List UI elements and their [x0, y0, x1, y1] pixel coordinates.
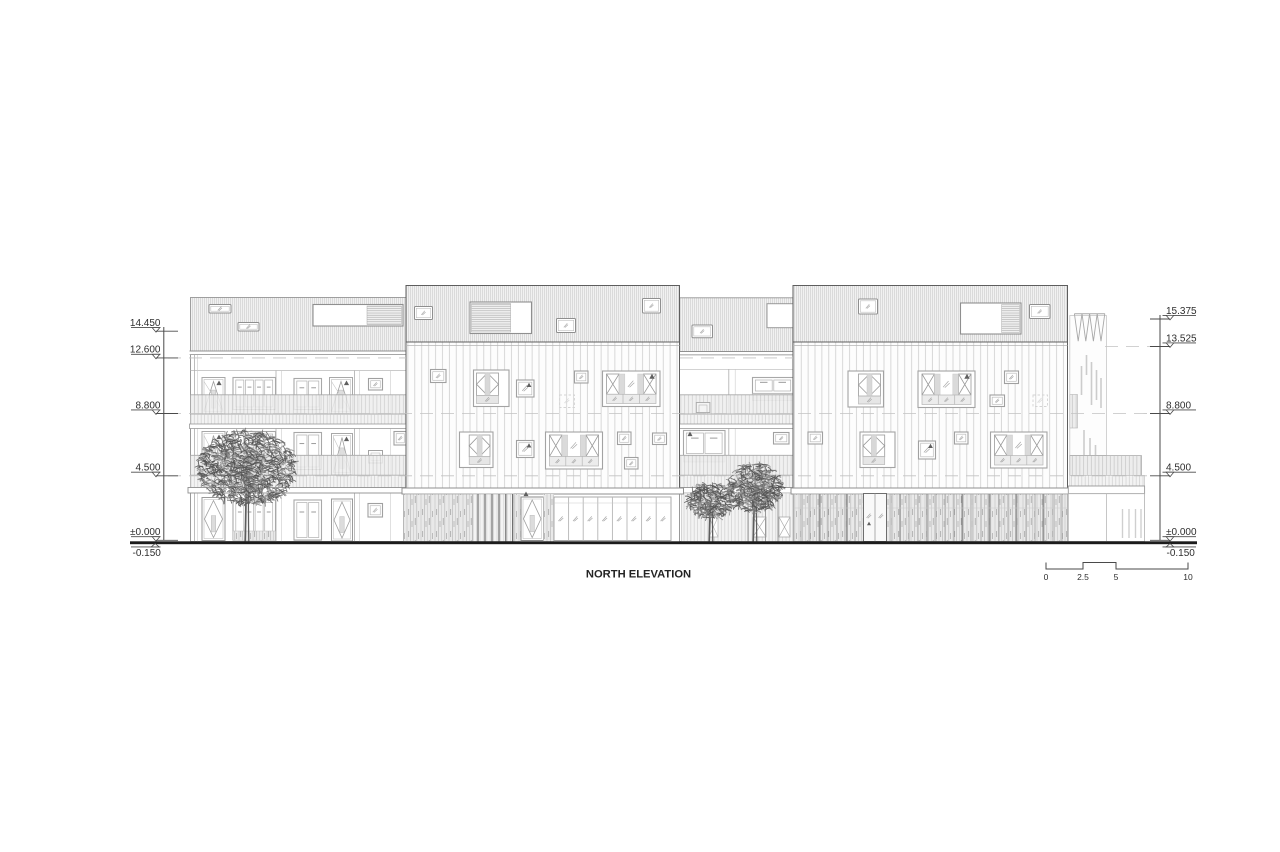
svg-text:NORTH ELEVATION: NORTH ELEVATION — [586, 569, 691, 581]
svg-text:5: 5 — [1114, 572, 1119, 582]
svg-text:13.525: 13.525 — [1166, 333, 1197, 344]
svg-text:-0.150: -0.150 — [1167, 548, 1196, 559]
svg-text:10: 10 — [1183, 572, 1193, 582]
svg-text:±0.000: ±0.000 — [130, 527, 161, 538]
svg-text:8.800: 8.800 — [1166, 400, 1191, 411]
svg-text:0: 0 — [1044, 572, 1049, 582]
svg-text:4.500: 4.500 — [135, 463, 160, 474]
svg-text:14.450: 14.450 — [130, 318, 161, 329]
svg-text:2.5: 2.5 — [1077, 572, 1089, 582]
svg-text:12.600: 12.600 — [130, 345, 161, 356]
svg-text:±0.000: ±0.000 — [1166, 527, 1197, 538]
svg-text:4.500: 4.500 — [1166, 463, 1191, 474]
svg-text:8.800: 8.800 — [135, 400, 160, 411]
svg-text:-0.150: -0.150 — [133, 548, 162, 559]
svg-text:15.375: 15.375 — [1166, 306, 1197, 317]
